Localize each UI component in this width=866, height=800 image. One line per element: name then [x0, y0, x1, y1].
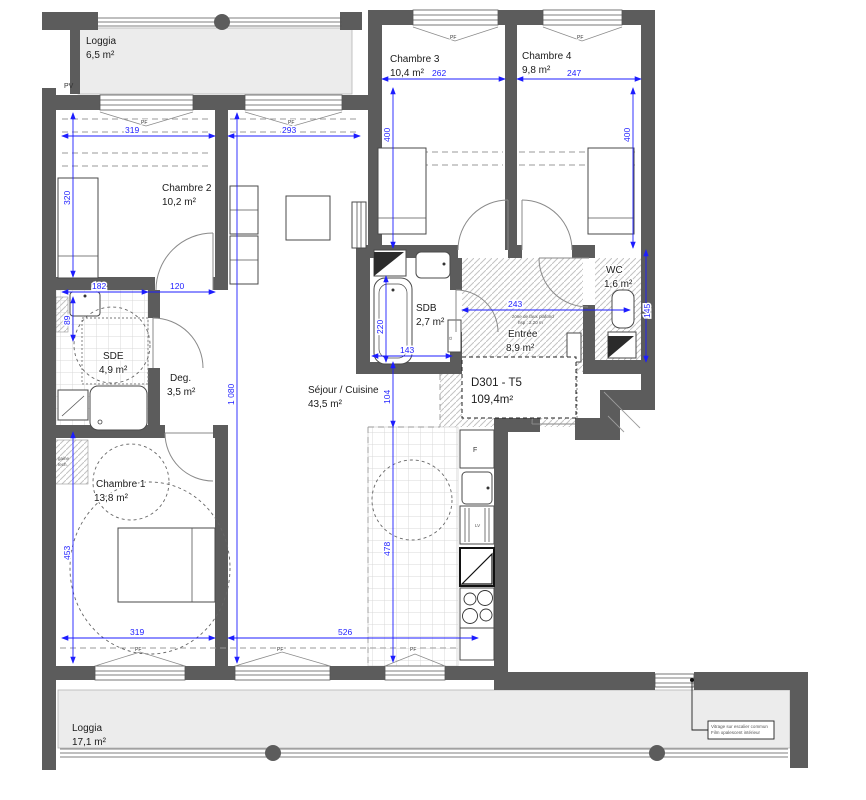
balustrade-post	[265, 745, 281, 761]
kitchen-appliances: F LV	[460, 430, 494, 660]
wall	[494, 672, 655, 690]
fold-door-icon	[374, 250, 406, 276]
wall	[193, 95, 245, 110]
room-label-loggia-bottom: Loggia	[72, 723, 102, 734]
room-label-sejour: Séjour / Cuisine	[308, 385, 379, 396]
wall	[498, 10, 543, 25]
window	[100, 95, 193, 110]
pf-label: PF	[141, 120, 147, 126]
glazing-note-line2: Film opalescent intérieur	[711, 730, 761, 735]
dim-value: 143	[400, 345, 414, 355]
oven-fold-icon	[460, 548, 494, 586]
room-area-sdb: 2,7 m²	[416, 317, 445, 328]
pf-label: PF	[277, 647, 283, 653]
window	[385, 666, 445, 680]
room-area-sde: 4,9 m²	[99, 365, 128, 376]
glazing-note-line1: Vitrage sur escalier commun	[711, 724, 768, 729]
wall	[330, 666, 385, 680]
dim-value: 400	[382, 128, 392, 142]
wall	[790, 672, 808, 768]
room-area-sejour: 43,5 m²	[308, 399, 343, 410]
wall	[340, 12, 362, 30]
room-area-loggia-top: 6,5 m²	[86, 50, 115, 61]
door-chambre1	[165, 433, 213, 481]
room-label-wc: WC	[606, 265, 623, 276]
room-label-loggia-top: Loggia	[86, 36, 116, 47]
bed-chambre3	[378, 148, 426, 234]
wall	[148, 368, 160, 430]
dim-value: 1 080	[226, 383, 236, 405]
gaine-label: G	[448, 336, 453, 340]
pf-label: PF	[450, 35, 456, 41]
dim-value: 89	[62, 315, 72, 325]
unit-id: D301 - T5	[471, 377, 522, 389]
window	[543, 10, 622, 25]
wall	[185, 666, 235, 680]
pf-label: PF	[135, 647, 141, 653]
dim-value: 145	[642, 304, 652, 318]
bed-chambre4	[588, 148, 634, 234]
room-label-sde: SDE	[103, 351, 124, 362]
floor-plan-page: G F LV	[0, 0, 866, 800]
hob	[460, 588, 494, 628]
door-chambre4	[522, 200, 572, 250]
pf-label: PF	[577, 35, 583, 41]
door-chambre3	[458, 200, 508, 250]
gaine-box	[448, 320, 461, 352]
wall	[42, 666, 95, 680]
dim-value: 478	[382, 542, 392, 556]
room-area-loggia-bottom: 17,1 m²	[72, 737, 107, 748]
radiator	[352, 202, 366, 248]
room-area-chambre1: 13,8 m²	[94, 493, 129, 504]
loggia-top-floor	[78, 28, 352, 94]
unit-label-box: D301 - T5 109,4m²	[462, 357, 576, 418]
fold-door-icon	[608, 332, 636, 358]
dim-value: 120	[170, 281, 184, 291]
room-area-entree: 8,9 m²	[506, 343, 535, 354]
dishwasher-label: LV	[475, 523, 480, 528]
room-area-chambre3: 10,4 m²	[390, 68, 425, 79]
room-area-chambre2: 10,2 m²	[162, 197, 197, 208]
wall	[508, 245, 522, 258]
dim-value: 220	[375, 320, 385, 334]
room-label-chambre1: Chambre 1	[96, 479, 146, 490]
fridge-label: F	[473, 447, 477, 454]
room-label-deg: Deg.	[170, 373, 191, 384]
room-area-deg: 3,5 m²	[167, 387, 196, 398]
wall	[641, 10, 655, 402]
window-opalescent	[655, 674, 694, 687]
bed-chambre1	[118, 528, 215, 602]
dim-value: 243	[508, 299, 522, 309]
window	[245, 95, 342, 110]
wall	[494, 425, 508, 680]
wall	[356, 362, 462, 374]
wall	[583, 360, 655, 374]
dim-value: 526	[338, 627, 352, 637]
room-area-chambre4: 9,8 m²	[522, 65, 551, 76]
dim-value: 247	[567, 68, 581, 78]
balustrade-post	[214, 14, 230, 30]
room-label-sdb: SDB	[416, 303, 437, 314]
door-chambre2	[156, 233, 213, 290]
gaine-hatch-sde	[56, 297, 68, 332]
wall	[215, 425, 228, 666]
window	[413, 10, 498, 25]
loggia-bottom-floor	[58, 690, 790, 748]
wall	[213, 277, 228, 290]
wall	[583, 305, 595, 365]
door-sde	[153, 318, 203, 368]
balustrade-post	[649, 745, 665, 761]
dim-value: 453	[62, 546, 72, 560]
wall	[148, 290, 160, 318]
dim-value: 319	[125, 125, 139, 135]
wall	[505, 25, 517, 250]
dim-value: 182	[92, 281, 106, 291]
gaine-note-line1: gaine	[58, 456, 70, 461]
room-label-chambre2: Chambre 2	[162, 183, 212, 194]
room-label-chambre4: Chambre 4	[522, 51, 572, 62]
floor-plan: G F LV	[0, 0, 866, 800]
toilet	[612, 290, 634, 328]
dim-value: 400	[622, 128, 632, 142]
wall	[356, 245, 370, 372]
wall	[215, 110, 228, 290]
window	[95, 666, 185, 680]
entree-note-line1: zone de faux plafond	[512, 314, 554, 319]
table	[286, 196, 330, 240]
gaine-note-line2: tech.	[58, 462, 68, 467]
wall	[42, 12, 98, 30]
counter	[460, 628, 494, 660]
entree-note-line2: hsp : 2,20 m	[518, 320, 543, 325]
wall	[572, 245, 595, 258]
dim-value: 320	[62, 191, 72, 205]
dim-value: 293	[282, 125, 296, 135]
dim-value: 104	[382, 390, 392, 404]
room-label-entree: Entrée	[508, 329, 538, 340]
window	[235, 666, 330, 680]
room-area-wc: 1,6 m²	[604, 279, 633, 290]
dim-value: 262	[432, 68, 446, 78]
pv-label: PV	[64, 83, 74, 90]
unit-area: 109,4m²	[471, 394, 513, 406]
room-label-chambre3: Chambre 3	[390, 54, 440, 65]
wall	[450, 258, 462, 290]
pf-label: PF	[410, 647, 416, 653]
dim-value: 319	[130, 627, 144, 637]
